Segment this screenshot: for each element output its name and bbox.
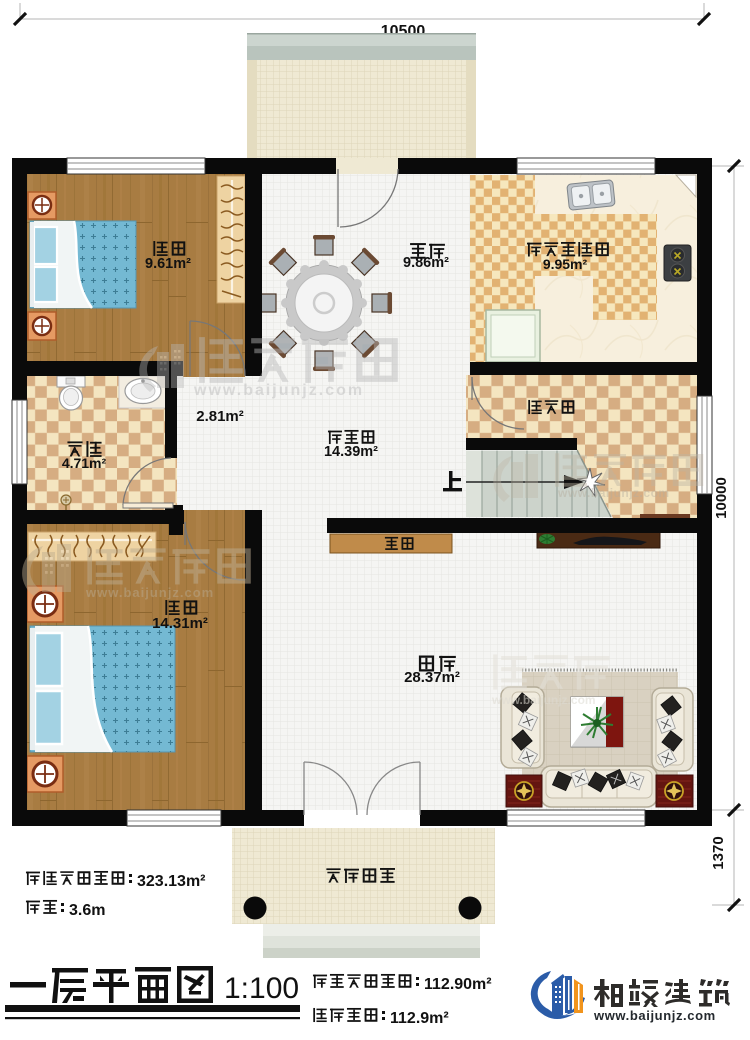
svg-text:www.baijunjz.com: www.baijunjz.com [491, 693, 596, 707]
svg-text:www.baijunjz.com: www.baijunjz.com [85, 585, 214, 600]
svg-text:www.baijunjz.com: www.baijunjz.com [557, 486, 670, 500]
svg-text:14.39m²: 14.39m² [324, 444, 378, 460]
svg-text:9.86m²: 9.86m² [403, 255, 449, 271]
svg-text:www.baijunjz.com: www.baijunjz.com [193, 382, 364, 399]
svg-text:323.13m²: 323.13m² [137, 873, 206, 890]
svg-text:112.90m²: 112.90m² [424, 976, 492, 993]
svg-text:1370: 1370 [710, 836, 727, 869]
svg-text:9.61m²: 9.61m² [145, 256, 191, 272]
svg-text:14.31m²: 14.31m² [152, 615, 208, 632]
svg-text:10000: 10000 [713, 477, 730, 519]
svg-text:1:100: 1:100 [224, 972, 299, 1005]
svg-text:2.81m²: 2.81m² [196, 408, 244, 425]
svg-text:4.71m²: 4.71m² [62, 455, 107, 471]
svg-text:28.37m²: 28.37m² [404, 669, 460, 686]
svg-text:3.6m: 3.6m [69, 902, 105, 919]
svg-text:9.95m²: 9.95m² [543, 256, 588, 272]
svg-text:www.baijunjz.com: www.baijunjz.com [593, 1008, 716, 1023]
svg-text:112.9m²: 112.9m² [390, 1010, 449, 1027]
